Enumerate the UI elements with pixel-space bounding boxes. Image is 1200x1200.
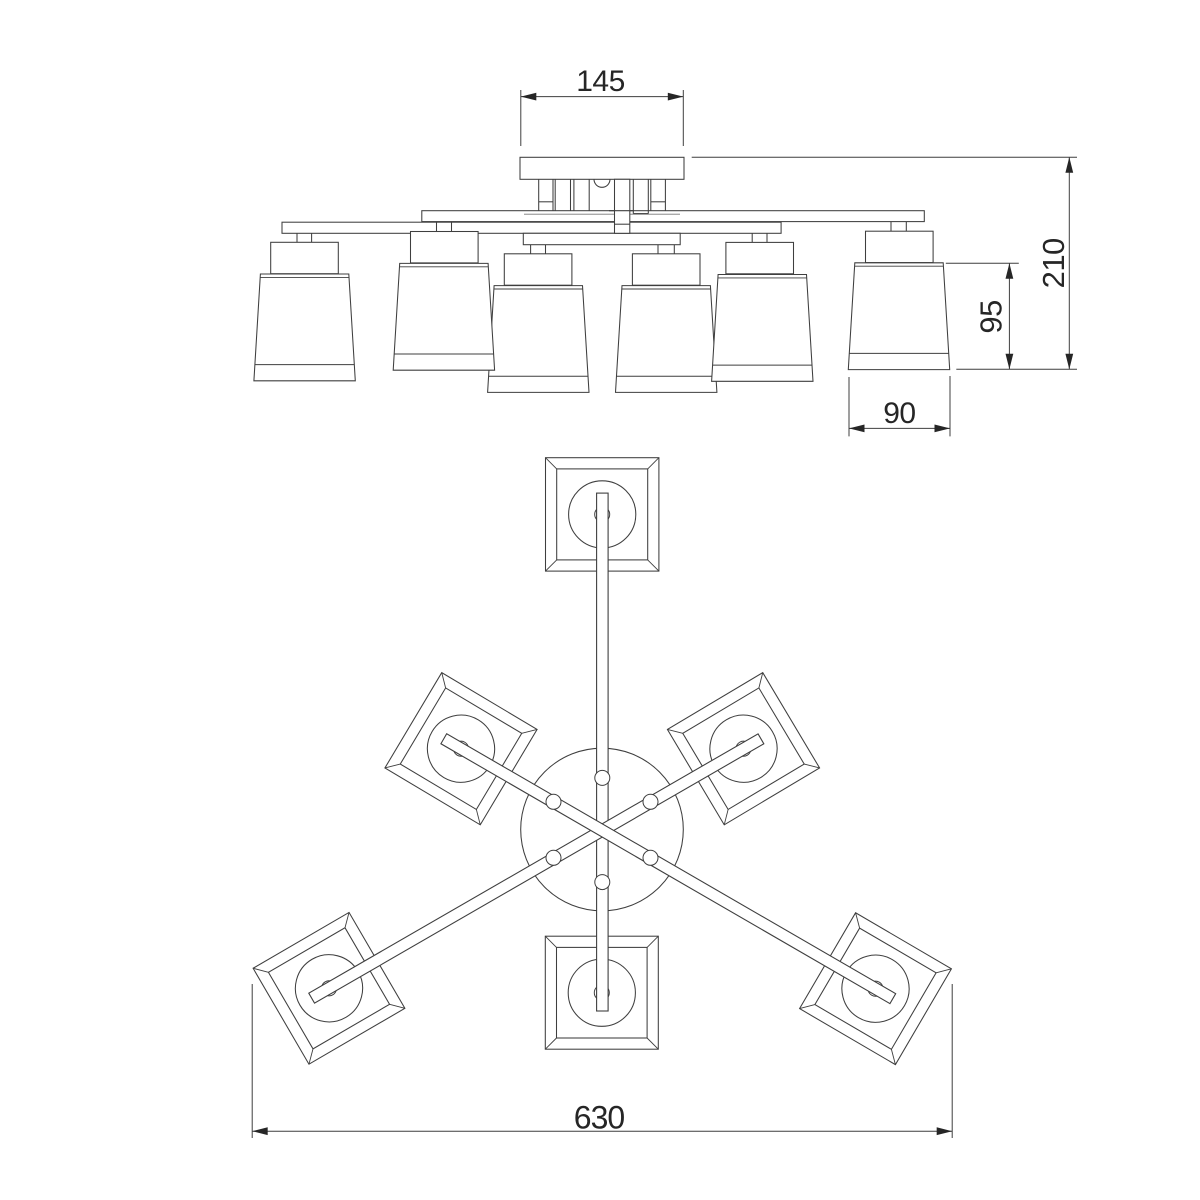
svg-text:90: 90 — [883, 397, 915, 430]
svg-text:95: 95 — [974, 300, 1009, 333]
svg-text:145: 145 — [576, 65, 625, 98]
svg-text:210: 210 — [1036, 238, 1071, 288]
svg-text:630: 630 — [574, 1100, 625, 1136]
